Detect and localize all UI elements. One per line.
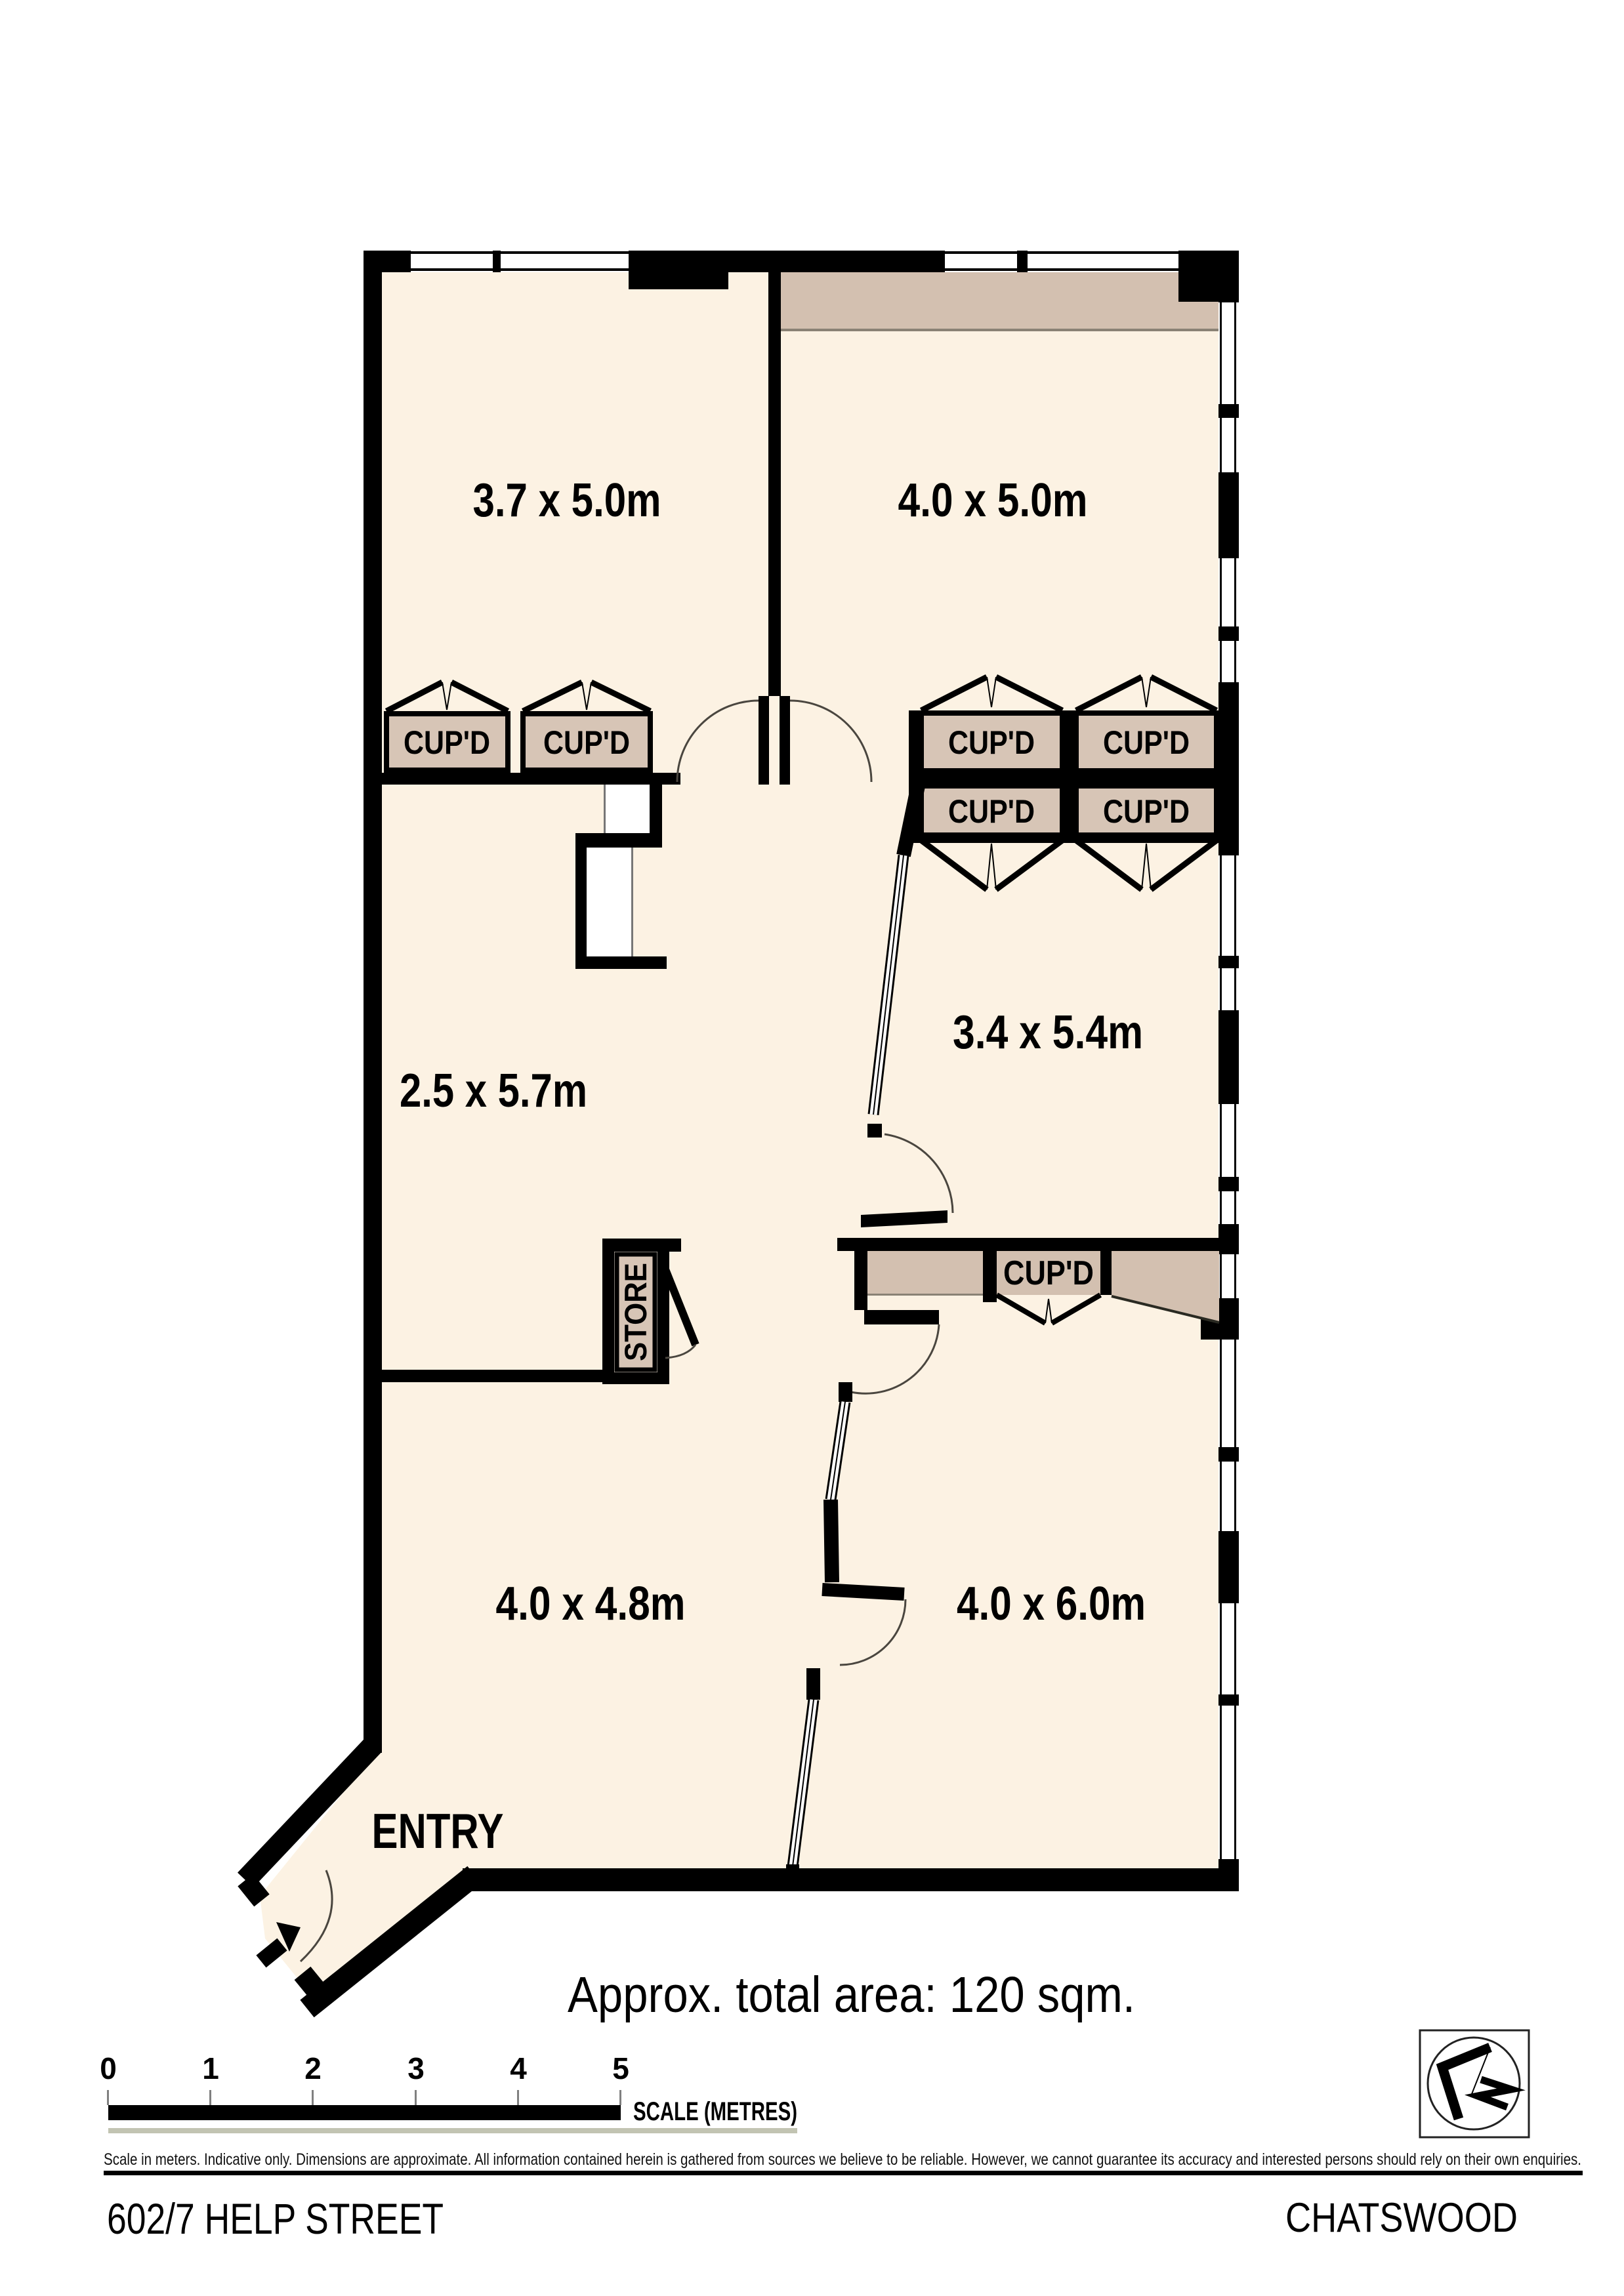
- svg-text:Scale in meters. Indicative on: Scale in meters. Indicative only. Dimens…: [104, 2150, 1581, 2169]
- svg-text:3.4 x 5.4m: 3.4 x 5.4m: [953, 1006, 1143, 1059]
- svg-text:CUP'D: CUP'D: [1103, 724, 1190, 761]
- svg-text:ENTRY: ENTRY: [372, 1803, 504, 1858]
- svg-text:STORE: STORE: [618, 1263, 653, 1361]
- svg-text:2.5 x 5.7m: 2.5 x 5.7m: [400, 1065, 587, 1117]
- svg-text:4: 4: [510, 2051, 527, 2085]
- svg-text:CUP'D: CUP'D: [948, 793, 1035, 830]
- svg-text:602/7 HELP STREET: 602/7 HELP STREET: [107, 2194, 444, 2243]
- svg-text:5: 5: [612, 2051, 629, 2085]
- svg-text:4.0 x 5.0m: 4.0 x 5.0m: [898, 474, 1088, 527]
- svg-text:CUP'D: CUP'D: [404, 724, 490, 761]
- svg-text:4.0 x 4.8m: 4.0 x 4.8m: [496, 1578, 686, 1630]
- svg-text:1: 1: [202, 2051, 219, 2085]
- svg-text:Approx. total area: 120 sqm.: Approx. total area: 120 sqm.: [568, 1967, 1135, 2023]
- svg-text:CUP'D: CUP'D: [1003, 1254, 1094, 1292]
- svg-text:3: 3: [407, 2051, 425, 2085]
- svg-text:2: 2: [304, 2051, 322, 2085]
- svg-text:CUP'D: CUP'D: [1103, 793, 1190, 830]
- svg-text:SCALE (METRES): SCALE (METRES): [633, 2097, 797, 2126]
- svg-text:3.7 x 5.0m: 3.7 x 5.0m: [473, 474, 661, 527]
- svg-text:0: 0: [100, 2051, 117, 2085]
- svg-text:CUP'D: CUP'D: [948, 724, 1035, 761]
- svg-text:4.0 x 6.0m: 4.0 x 6.0m: [957, 1578, 1146, 1630]
- svg-text:CHATSWOOD: CHATSWOOD: [1285, 2195, 1518, 2241]
- svg-text:CUP'D: CUP'D: [543, 724, 630, 761]
